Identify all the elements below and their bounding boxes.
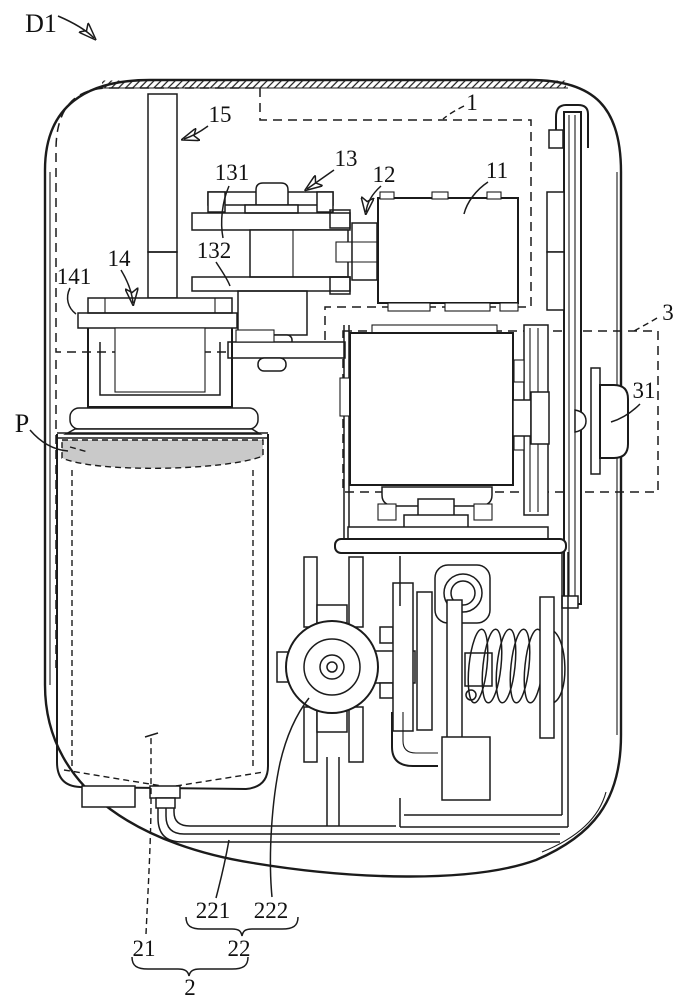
- leader-15: [184, 126, 208, 139]
- side-rail: [547, 105, 588, 608]
- callout-21: 21: [133, 936, 156, 961]
- gear-train-13: [192, 183, 352, 371]
- gear-131-teeth: [192, 213, 350, 230]
- shaft-cap: [256, 183, 288, 205]
- solenoid-body: [350, 333, 513, 485]
- container-foot: [82, 786, 135, 807]
- rack-15: [148, 94, 177, 298]
- leader-3: [634, 318, 657, 331]
- pedestal: [70, 408, 258, 429]
- leader-1: [443, 106, 464, 119]
- gear-14-teeth: [78, 313, 237, 328]
- container-inner-dashed: [72, 470, 253, 768]
- callout-141: 141: [57, 264, 92, 289]
- leader-221: [216, 840, 229, 898]
- callout-p: P: [15, 409, 29, 438]
- callout-31: 31: [633, 378, 656, 403]
- motor-11: [378, 192, 518, 311]
- callout-221: 221: [196, 898, 231, 923]
- driven-gear-14: [66, 298, 260, 434]
- trigger-block: [335, 325, 586, 553]
- content-p-shade: [62, 440, 263, 468]
- rail-contact-tab: [575, 410, 586, 432]
- button-31: [591, 368, 628, 474]
- callout-12: 12: [373, 162, 396, 187]
- callout-131: 131: [215, 160, 250, 185]
- conduit-221: [158, 757, 560, 842]
- mount-bar: [228, 342, 345, 358]
- leader-21: [146, 737, 151, 934]
- callout-14: 14: [108, 246, 132, 271]
- callout-1: 1: [466, 90, 478, 115]
- callout-13: 13: [335, 146, 358, 171]
- valve-actuator-spring-assembly: [380, 565, 565, 766]
- leader-132: [216, 262, 230, 286]
- riser-to-valve: [327, 757, 339, 826]
- leader-141: [68, 288, 76, 314]
- callout-15: 15: [209, 102, 232, 127]
- callout-d1: D1: [25, 9, 57, 38]
- callout-2: 2: [184, 975, 196, 1000]
- patent-figure: D1 1 15 131 13 12 11 132 141 14 P 3 31 2…: [0, 0, 679, 1000]
- leader-13: [307, 170, 334, 189]
- callout-222: 222: [254, 898, 289, 923]
- callout-3: 3: [662, 300, 674, 325]
- pinion-teeth: [238, 291, 307, 335]
- screw-thread: [148, 252, 177, 298]
- container-21: [57, 433, 268, 808]
- callout-11: 11: [486, 158, 508, 183]
- grouping-braces: [132, 917, 298, 976]
- valve-body-block: [442, 737, 490, 800]
- callout-22: 22: [228, 936, 251, 961]
- gear-132-teeth: [192, 277, 350, 291]
- callout-132: 132: [197, 238, 232, 263]
- leader-d1: [58, 16, 94, 38]
- outlet-fitting: [150, 786, 180, 798]
